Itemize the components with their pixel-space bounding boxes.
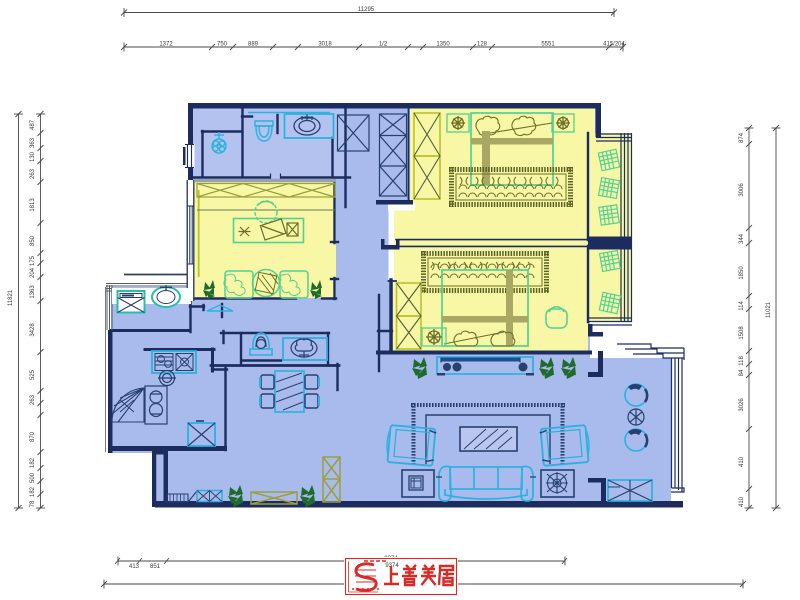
svg-text:130: 130 <box>30 151 36 162</box>
svg-text:874: 874 <box>739 132 745 143</box>
svg-text:204: 204 <box>30 267 36 278</box>
svg-text:1363: 1363 <box>30 285 36 299</box>
svg-text:114: 114 <box>739 301 745 311</box>
svg-text:487: 487 <box>30 119 36 130</box>
svg-text:1372: 1372 <box>159 42 173 48</box>
svg-text:182: 182 <box>30 486 36 497</box>
svg-text:500: 500 <box>30 472 36 483</box>
svg-text:3428: 3428 <box>30 323 36 337</box>
svg-text:78: 78 <box>30 500 36 507</box>
svg-text:3026: 3026 <box>739 398 745 412</box>
svg-text:1350: 1350 <box>436 42 450 48</box>
svg-text:525: 525 <box>30 369 36 380</box>
svg-text:851: 851 <box>150 564 161 570</box>
svg-text:128: 128 <box>477 42 488 48</box>
svg-text:263: 263 <box>30 394 36 405</box>
svg-text:3006: 3006 <box>739 183 745 197</box>
svg-text:11021: 11021 <box>766 301 772 318</box>
svg-text:850: 850 <box>30 235 36 246</box>
svg-text:263: 263 <box>30 168 36 179</box>
svg-text:870: 870 <box>30 431 36 442</box>
svg-text:118: 118 <box>739 356 745 366</box>
svg-text:9374: 9374 <box>385 563 399 569</box>
svg-text:11295: 11295 <box>358 7 375 13</box>
svg-text:413: 413 <box>129 564 140 570</box>
svg-text:1813: 1813 <box>30 198 36 212</box>
svg-text:363: 363 <box>30 137 36 148</box>
svg-text:84: 84 <box>739 369 745 376</box>
svg-text:11821: 11821 <box>8 289 14 306</box>
svg-text:889: 889 <box>248 42 259 48</box>
svg-text:1850: 1850 <box>739 266 745 280</box>
svg-text:750: 750 <box>217 42 228 48</box>
svg-text:175: 175 <box>30 255 36 266</box>
svg-text:5551: 5551 <box>541 42 555 48</box>
svg-text:1/2: 1/2 <box>379 42 388 48</box>
svg-text:415/204: 415/204 <box>603 42 625 48</box>
svg-text:344: 344 <box>739 233 745 244</box>
svg-text:182: 182 <box>30 457 36 468</box>
svg-text:1508: 1508 <box>739 326 745 340</box>
svg-text:3018: 3018 <box>318 42 332 48</box>
svg-text:410: 410 <box>739 456 745 467</box>
svg-text:410: 410 <box>739 496 745 507</box>
